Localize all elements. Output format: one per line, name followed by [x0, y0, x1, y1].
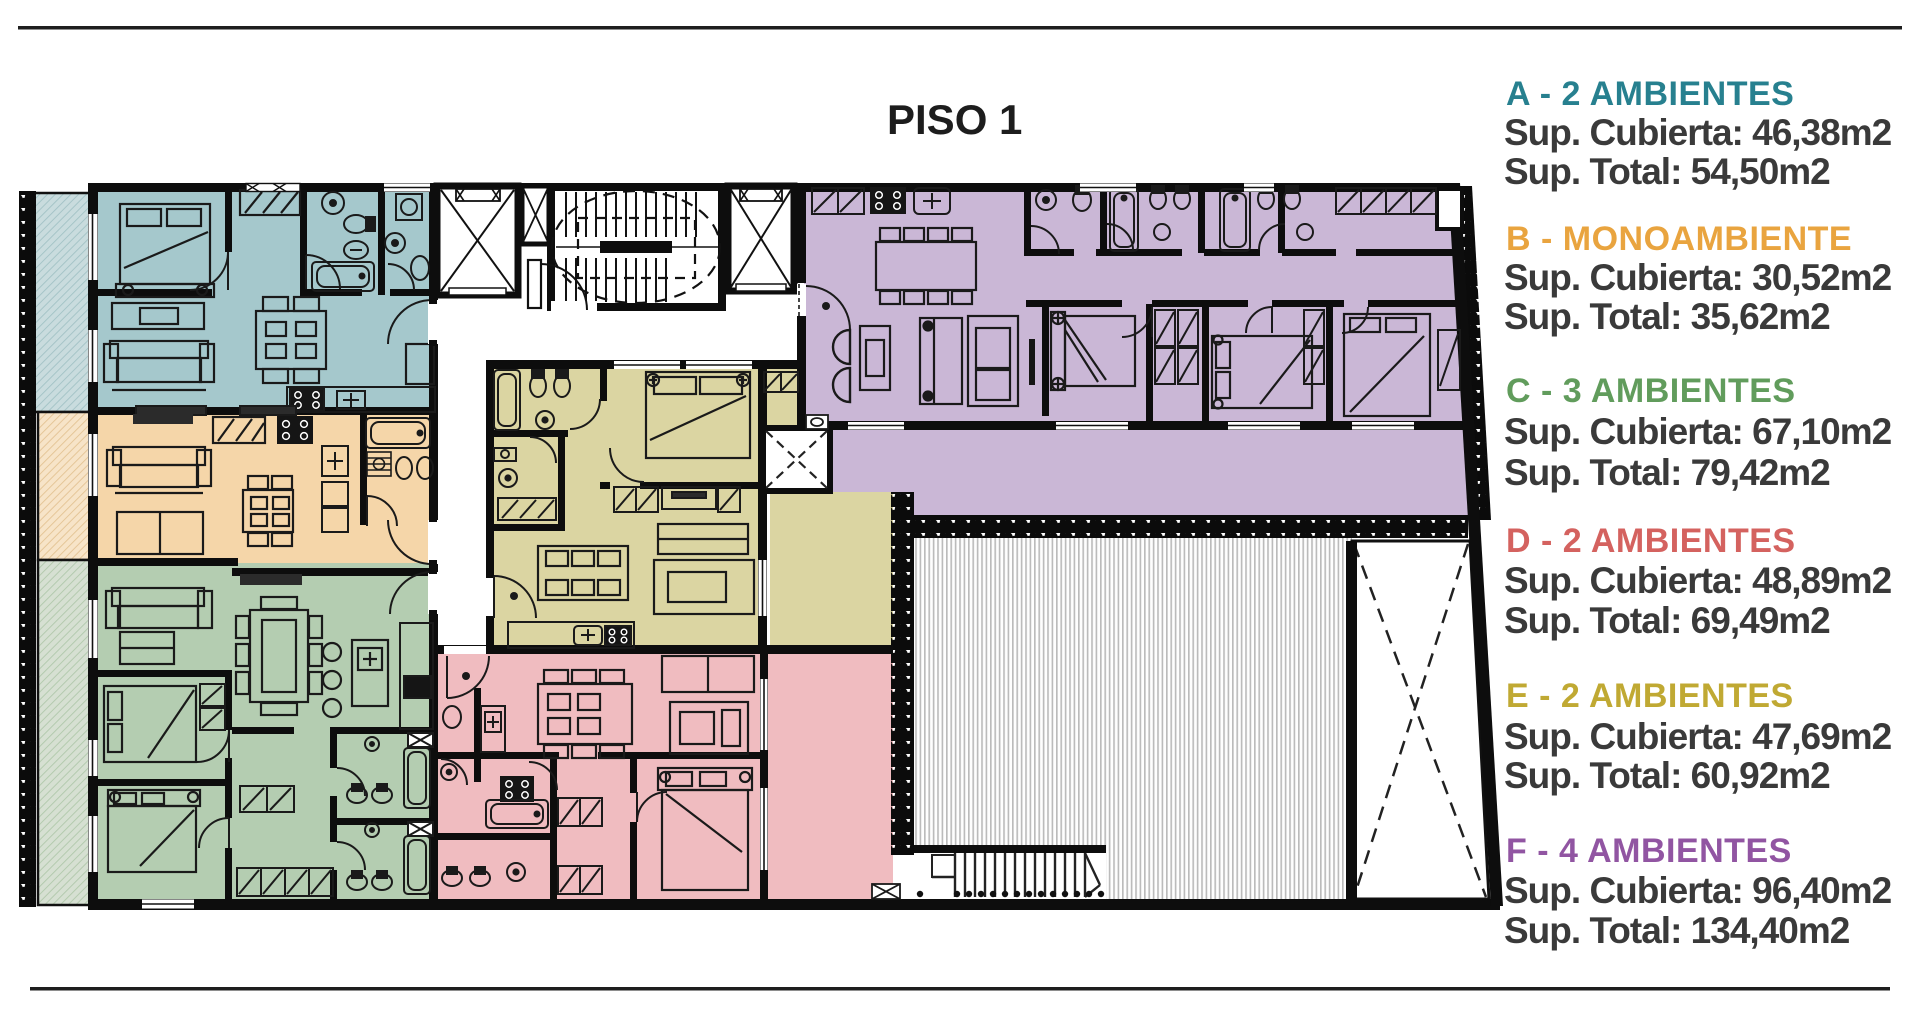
svg-text:Sup. Cubierta: 48,89m2: Sup. Cubierta: 48,89m2 [1504, 560, 1892, 601]
svg-text:E - 2 AMBIENTES: E - 2 AMBIENTES [1506, 677, 1794, 715]
svg-text:C - 3 AMBIENTES: C - 3 AMBIENTES [1506, 372, 1796, 410]
svg-text:Sup. Total: 54,50m2: Sup. Total: 54,50m2 [1504, 151, 1830, 192]
svg-text:A - 2 AMBIENTES: A - 2 AMBIENTES [1506, 75, 1794, 113]
svg-text:Sup. Cubierta: 47,69m2: Sup. Cubierta: 47,69m2 [1504, 716, 1892, 757]
svg-text:Sup. Total: 134,40m2: Sup. Total: 134,40m2 [1504, 910, 1850, 951]
svg-text:F - 4 AMBIENTES: F - 4 AMBIENTES [1506, 832, 1792, 870]
svg-text:Sup. Total: 35,62m2: Sup. Total: 35,62m2 [1504, 296, 1830, 337]
svg-text:PISO 1: PISO 1 [887, 96, 1022, 143]
svg-text:Sup. Cubierta: 46,38m2: Sup. Cubierta: 46,38m2 [1504, 112, 1892, 153]
svg-text:D - 2 AMBIENTES: D - 2 AMBIENTES [1506, 522, 1796, 560]
svg-text:Sup. Total: 79,42m2: Sup. Total: 79,42m2 [1504, 452, 1830, 493]
svg-text:Sup. Total: 60,92m2: Sup. Total: 60,92m2 [1504, 755, 1830, 796]
svg-text:Sup. Cubierta: 96,40m2: Sup. Cubierta: 96,40m2 [1504, 870, 1892, 911]
svg-text:Sup. Cubierta: 67,10m2: Sup. Cubierta: 67,10m2 [1504, 411, 1892, 452]
svg-text:B - MONOAMBIENTE: B - MONOAMBIENTE [1506, 220, 1852, 258]
svg-text:Sup. Cubierta: 30,52m2: Sup. Cubierta: 30,52m2 [1504, 257, 1892, 298]
svg-text:Sup. Total: 69,49m2: Sup. Total: 69,49m2 [1504, 600, 1830, 641]
